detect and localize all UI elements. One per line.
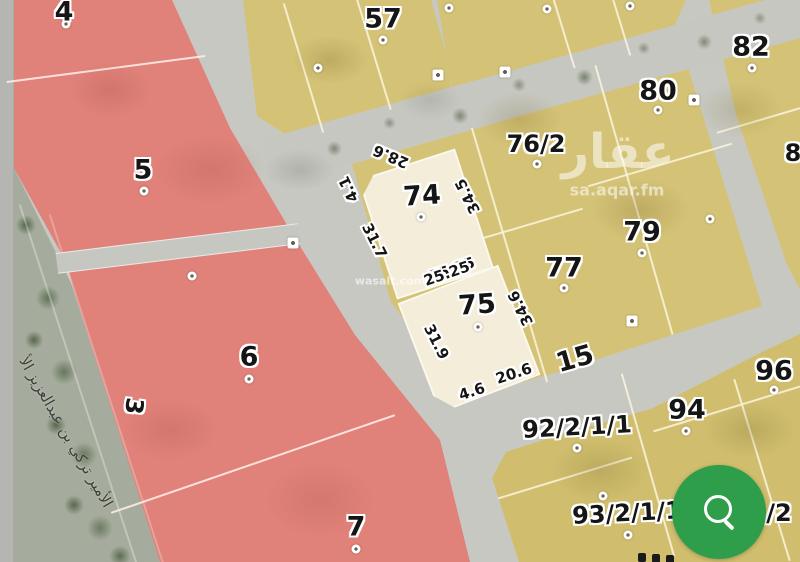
map-pin[interactable] [140,187,149,196]
parcel-label-79: 79 [623,219,661,246]
map-pin[interactable] [379,36,388,45]
cutoff-label-fragment [638,553,646,562]
map-pin[interactable] [560,284,569,293]
parcel-label-5: 5 [134,157,153,184]
parcel-label-93-2-1-1: 93/2/1/1 [572,498,683,528]
map-pin[interactable] [533,160,542,169]
utility-marker [500,67,511,78]
aqar-watermark: عقار [562,124,675,180]
parcel-label-57: 57 [364,6,402,33]
parcel-label-80: 80 [639,78,677,105]
map-pin[interactable] [245,375,254,384]
utility-marker [689,95,700,106]
parcel-label-76-2: 76/2 [507,132,566,156]
parcel-label-75: 75 [457,290,496,320]
parcel-label-6: 6 [240,344,259,371]
aqar-domain-watermark: sa.aqar.fm [570,181,665,200]
parcel-label-92-2-1-1: 92/2/1/1 [522,412,633,442]
parcel-label-94: 94 [668,397,706,424]
map-pin[interactable] [682,427,691,436]
map-pin[interactable] [638,249,647,258]
parcel-label-74: 74 [402,181,441,211]
map-pin[interactable] [626,2,635,11]
parcel-label-96: 96 [755,358,793,385]
map-pin[interactable] [417,213,426,222]
map-pin[interactable] [474,323,483,332]
utility-marker [288,238,299,249]
map-pin[interactable] [624,531,633,540]
street-number-3: 3 [121,396,147,416]
utility-marker [627,316,638,327]
map-pin[interactable] [543,5,552,14]
wasalt-watermark: wasalt.com [355,275,425,288]
magnifier-handle-icon [723,519,734,530]
map-pin[interactable] [706,215,715,224]
map-pin[interactable] [654,106,663,115]
parcel-label-7: 7 [347,514,366,541]
parcel-label-82: 82 [732,34,770,61]
map-pin[interactable] [748,64,757,73]
map-pin[interactable] [188,272,197,281]
map-pin[interactable] [770,386,779,395]
magnifier-icon [704,495,732,523]
parcel-label-8-partial: 8 [785,141,800,165]
parcel-label-77: 77 [545,255,583,282]
map-pin[interactable] [352,545,361,554]
parcel-label-2: /2 [766,501,791,525]
map-canvas[interactable]: 4 5 6 7 57 74 75 76/2 77 79 80 82 94 96 … [0,0,800,562]
search-button[interactable] [672,465,766,559]
map-pin[interactable] [573,444,582,453]
utility-marker [433,70,444,81]
map-pin[interactable] [314,64,323,73]
map-pin[interactable] [445,4,454,13]
parcel-label-4: 4 [55,0,74,26]
